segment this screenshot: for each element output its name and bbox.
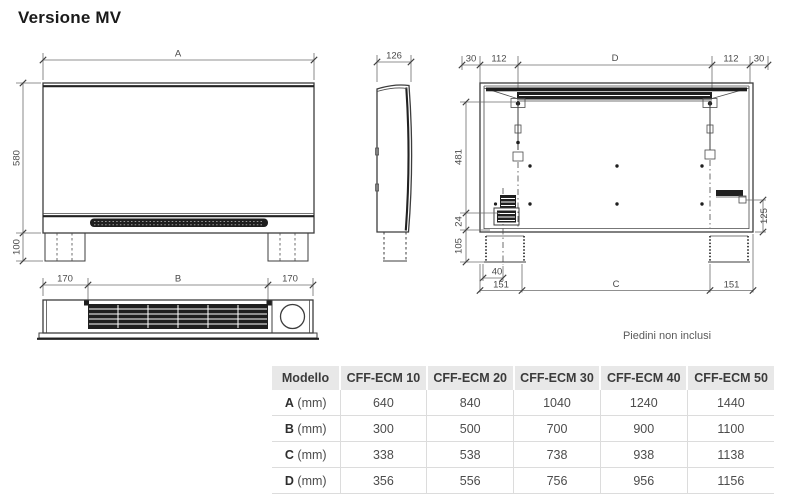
row-letter: C (285, 448, 294, 462)
dim-label-front-width: A (175, 49, 182, 60)
table-cell: 338 (340, 442, 427, 468)
table-cell: 900 (600, 416, 687, 442)
dim-label-rear-right: 125 (759, 208, 770, 224)
row-label-A: A (mm) (272, 390, 340, 416)
row-letter: D (285, 474, 294, 488)
dimensions-table: Modello CFF-ECM 10 CFF-ECM 20 CFF-ECM 30… (272, 366, 774, 494)
dim-label-rear-left-1: 24 (454, 216, 465, 227)
table-row-D: D (mm) 356 556 756 956 1156 (272, 468, 774, 494)
rear-view: 30 112 D 112 30 (454, 53, 772, 294)
dim-label-rear-bottom-2: C (613, 279, 620, 290)
table-cell: 756 (514, 468, 601, 494)
table-header-model-4: CFF-ECM 40 (600, 366, 687, 390)
dim-label-rear-top-0: 30 (466, 54, 477, 65)
top-view: 170 B 170 (37, 274, 319, 339)
table-header-modello: Modello (272, 366, 340, 390)
table-cell: 500 (427, 416, 514, 442)
table-header-model-1: CFF-ECM 10 (340, 366, 427, 390)
dim-label-top-center: B (175, 274, 181, 285)
dim-label-rear-bottom-3: 151 (724, 280, 740, 291)
table-cell: 1040 (514, 390, 601, 416)
front-view: A 580 100 (12, 49, 318, 265)
row-unit: (mm) (297, 396, 326, 410)
table-cell: 640 (340, 390, 427, 416)
row-letter: B (285, 422, 294, 436)
row-label-C: C (mm) (272, 442, 340, 468)
table-header-row: Modello CFF-ECM 10 CFF-ECM 20 CFF-ECM 30… (272, 366, 774, 390)
row-label-D: D (mm) (272, 468, 340, 494)
dim-label-front-feet: 100 (12, 239, 23, 255)
table-header-model-2: CFF-ECM 20 (427, 366, 514, 390)
left-bracket (511, 99, 525, 229)
technical-drawing: A 580 100 (0, 0, 800, 356)
row-unit: (mm) (297, 448, 326, 462)
table-cell: 1156 (687, 468, 774, 494)
table-cell: 556 (427, 468, 514, 494)
tray-bracket (716, 190, 746, 203)
table-header-model-5: CFF-ECM 50 (687, 366, 774, 390)
table-cell: 700 (514, 416, 601, 442)
dim-label-rear-bottom-1: 151 (493, 280, 509, 291)
table-cell: 938 (600, 442, 687, 468)
dim-label-top-left: 170 (57, 274, 73, 285)
table-cell: 300 (340, 416, 427, 442)
fan-opening (281, 305, 305, 329)
feet-note: Piedini non inclusi (592, 330, 742, 342)
table-header-model-3: CFF-ECM 30 (514, 366, 601, 390)
table-cell: 1240 (600, 390, 687, 416)
table-cell: 538 (427, 442, 514, 468)
table-cell: 738 (514, 442, 601, 468)
datasheet-page: { "title": "Versione MV", "note": "Piedi… (0, 0, 800, 503)
front-grille (90, 219, 268, 228)
dim-label-front-height: 580 (12, 150, 23, 166)
dim-label-rear-bottom-0: 40 (492, 267, 503, 278)
top-grille (84, 301, 272, 330)
dim-label-rear-left-2: 105 (454, 238, 465, 254)
row-label-B: B (mm) (272, 416, 340, 442)
table-row-C: C (mm) 338 538 738 938 1138 (272, 442, 774, 468)
row-unit: (mm) (297, 474, 326, 488)
dim-label-rear-top-3: 112 (723, 54, 738, 65)
table-cell: 356 (340, 468, 427, 494)
rear-feet (484, 236, 750, 262)
dim-label-rear-top-1: 112 (491, 54, 506, 65)
front-feet (45, 233, 308, 261)
table-row-B: B (mm) 300 500 700 900 1100 (272, 416, 774, 442)
mounting-holes (528, 164, 703, 205)
dim-label-rear-top-4: 30 (754, 54, 765, 65)
table-cell: 1138 (687, 442, 774, 468)
side-view: 126 (374, 51, 414, 262)
dim-label-rear-left-0: 481 (454, 149, 465, 165)
row-letter: A (285, 396, 294, 410)
dim-label-top-right: 170 (282, 274, 298, 285)
dim-label-side-depth: 126 (386, 51, 402, 62)
right-bracket (703, 99, 717, 229)
table-cell: 1440 (687, 390, 774, 416)
table-cell: 956 (600, 468, 687, 494)
row-unit: (mm) (297, 422, 326, 436)
table-row-A: A (mm) 640 840 1040 1240 1440 (272, 390, 774, 416)
table-cell: 840 (427, 390, 514, 416)
table-cell: 1100 (687, 416, 774, 442)
valve-assembly (494, 188, 519, 265)
side-foot (383, 232, 407, 261)
dim-label-rear-top-2: D (612, 53, 619, 64)
